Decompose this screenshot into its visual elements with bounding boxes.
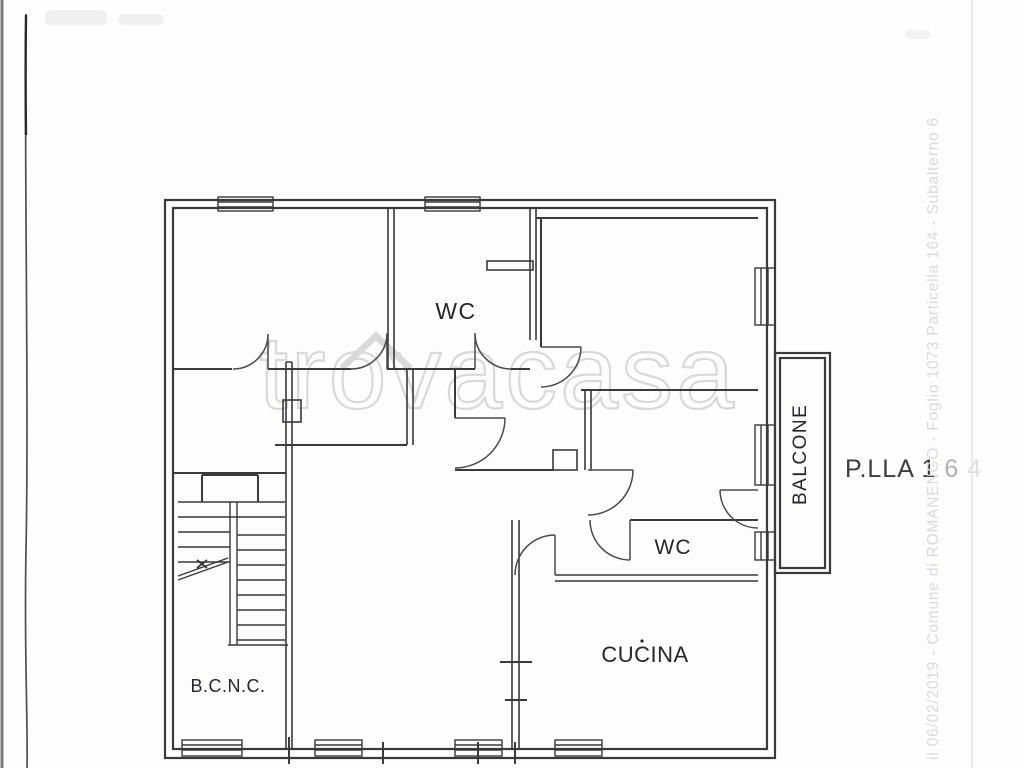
outer-walls [165,200,830,758]
parcel-label-faded-1: 6 [944,455,959,483]
watermark: trovacasa [259,315,737,431]
room-label-wc-top: WC [435,298,476,324]
scanned-floor-plan-page: trovacasa [0,0,1024,768]
balcony-window [755,425,775,485]
parcel-label: P.LLA 1 6 4 [845,455,982,483]
scan-dot-artifact [640,639,643,642]
room-label-cucina: CUCINA [601,642,688,667]
windows [182,197,775,756]
watermark-text: trovacasa [259,315,737,431]
room-label-balcone: BALCONE [790,404,811,505]
staircase [178,502,288,645]
floor-plan-drawing: trovacasa [0,0,1024,768]
parcel-label-main: P.LLA 1 [845,455,936,483]
room-label-wc-bottom: WC [655,536,692,559]
window [755,268,775,325]
parcel-label-faded-2: 4 [967,455,982,483]
room-label-bcnc: B.C.N.C. [190,676,265,696]
balcony-window [755,532,775,560]
cadastral-side-text: il 06/02/2019 - Comune di ROMANENGO - Fo… [925,117,942,760]
